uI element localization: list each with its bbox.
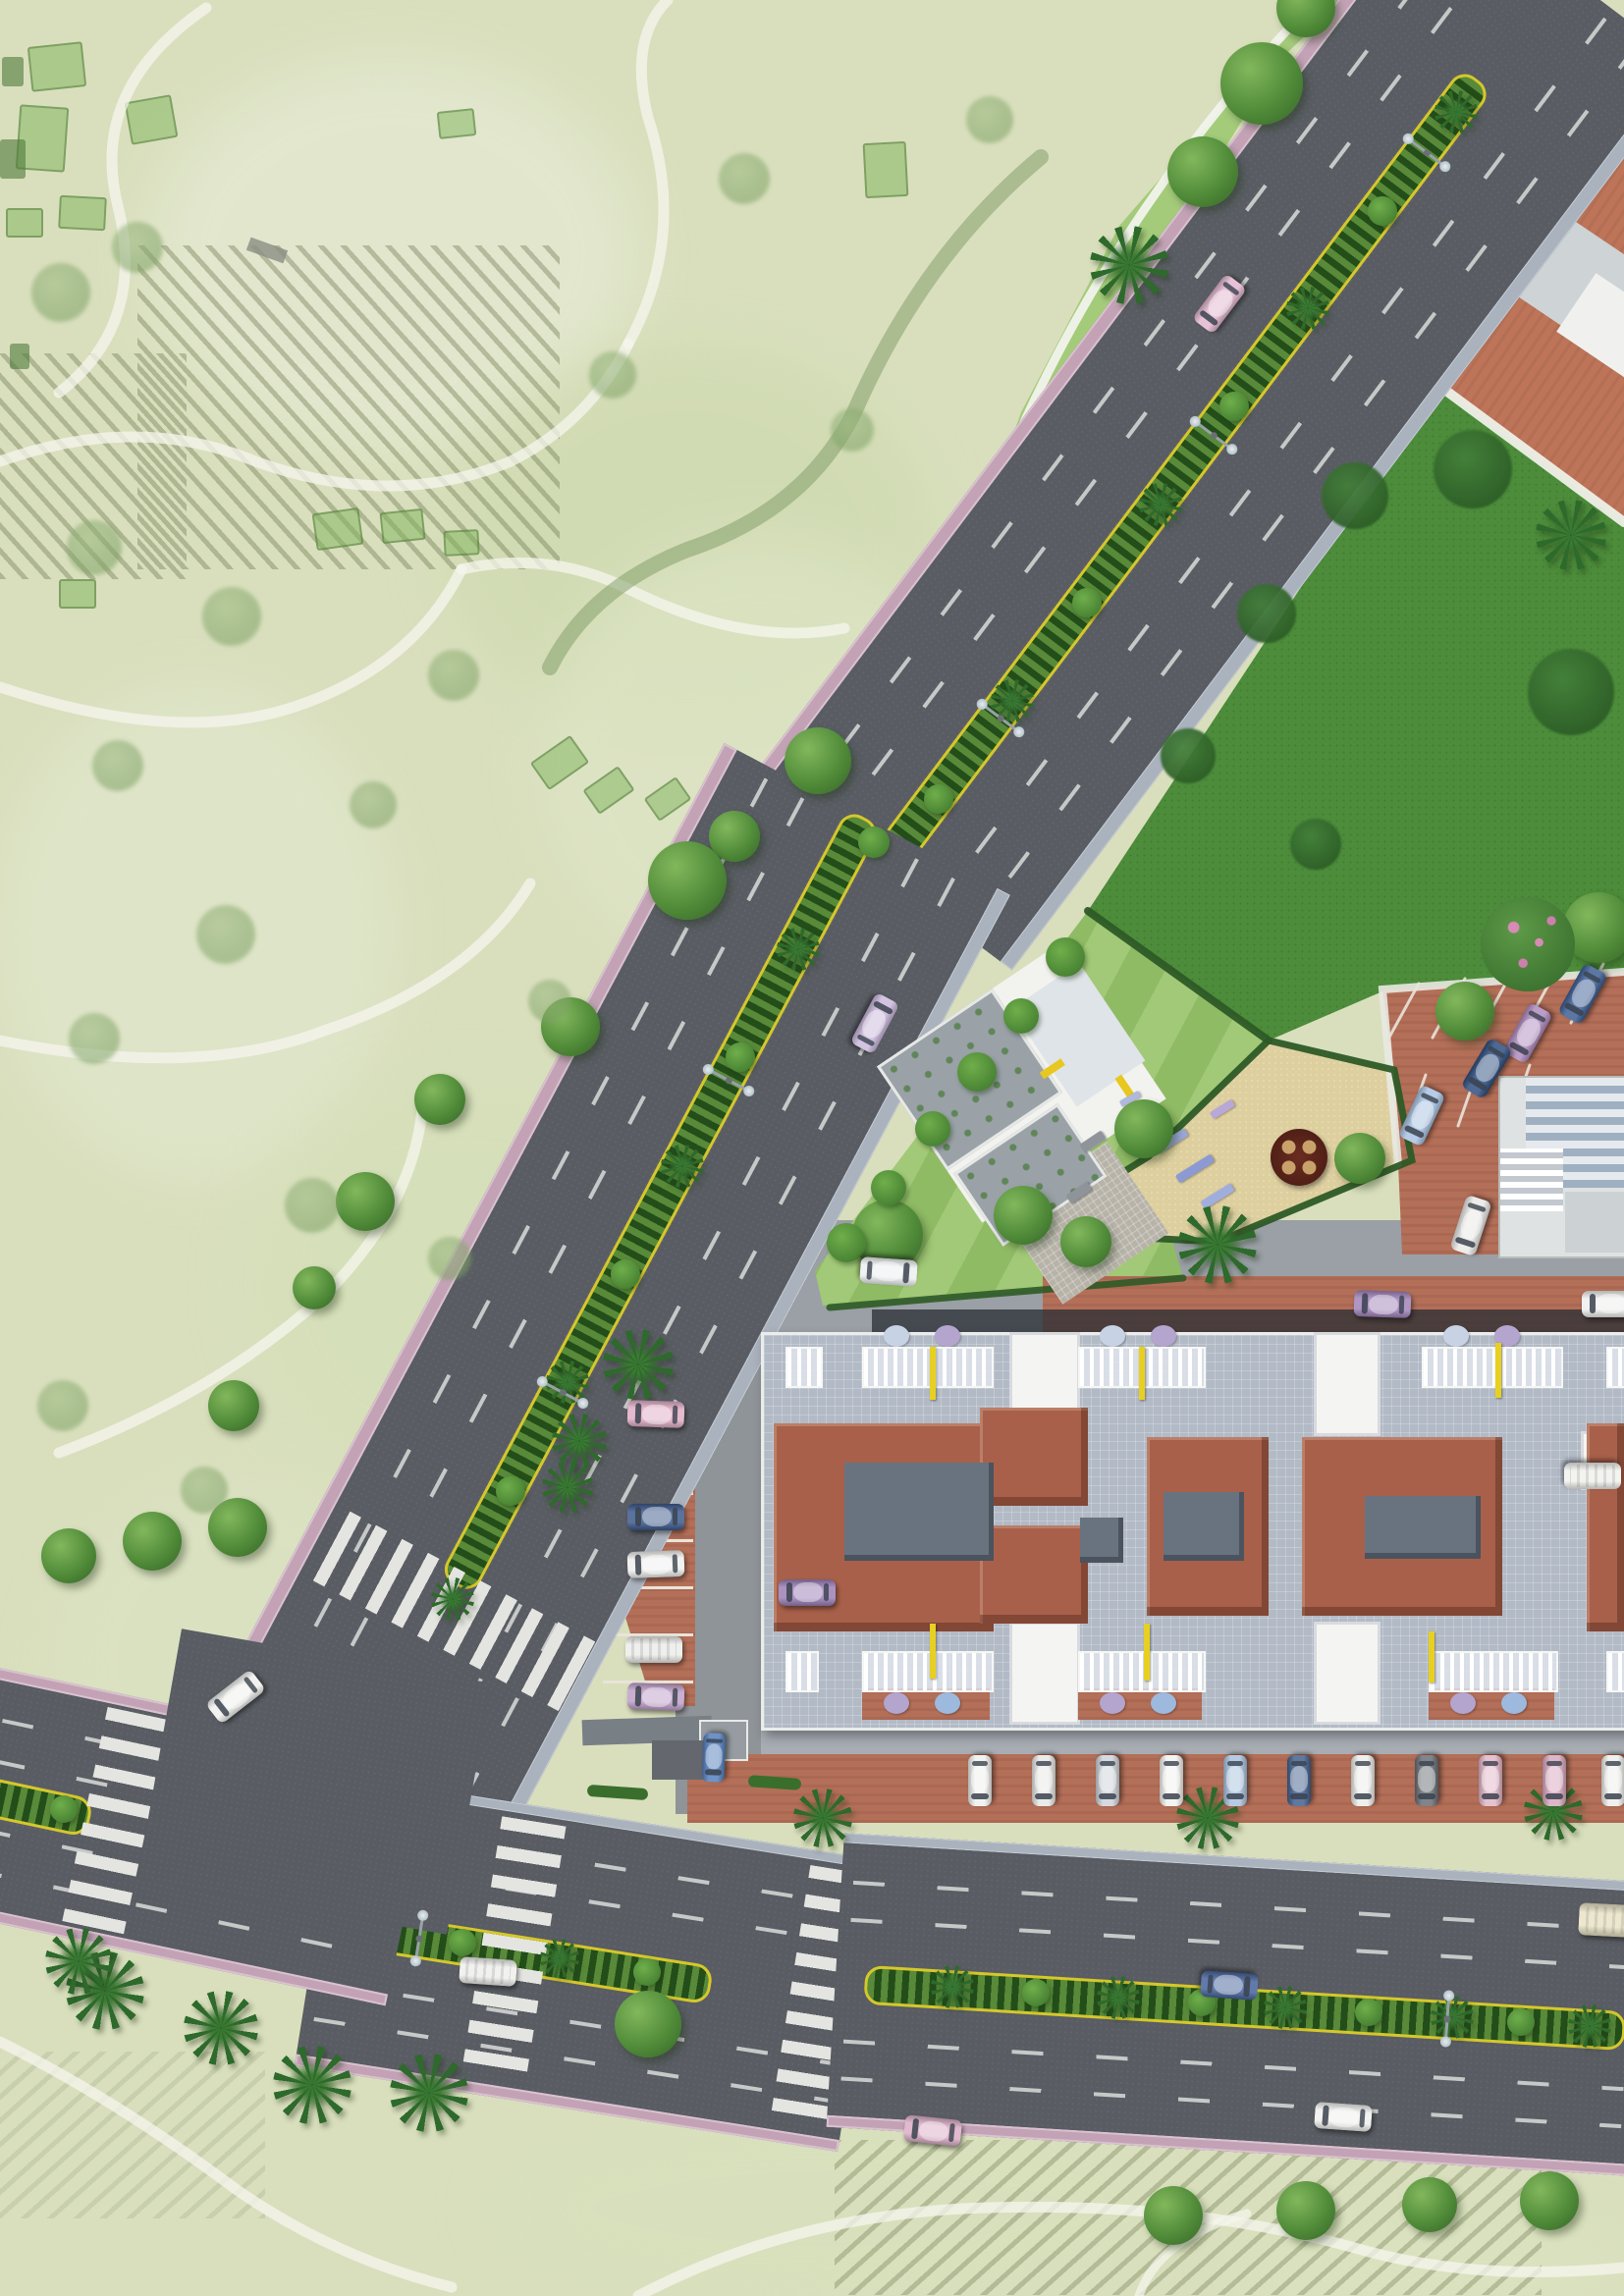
car-roof [1597,1294,1624,1313]
car-windshield [635,1554,642,1575]
tree-round [414,1074,465,1125]
car-roof [642,1404,673,1424]
car-windshield [1590,1294,1596,1314]
car-windshield [971,1793,989,1799]
roof-terracotta [980,1408,1088,1506]
car-roof [872,1260,902,1282]
tree-faded [966,96,1013,143]
balcony-railing [1606,1651,1624,1692]
palm-tree [390,2054,468,2132]
court-wall [1314,1332,1380,1436]
van-roof-ribs [631,1638,677,1661]
car-rear-window [824,1583,829,1602]
tree-round [1220,42,1303,125]
car-rear-window [1546,1761,1563,1766]
tree-round [208,1380,259,1431]
van [625,1636,682,1663]
palm-tree [931,1965,974,2008]
van-roof-ribs [1586,1905,1624,1936]
shrub [1219,392,1249,421]
shrub [858,827,890,858]
tree-round [1060,1216,1111,1267]
tree-faded [196,905,255,964]
stair-core-roof [1365,1496,1481,1559]
tree-round [1167,136,1238,207]
car [627,1504,684,1530]
tree-faded [285,1178,340,1233]
car-rear-window [1359,2109,1366,2127]
balcony-railing [785,1347,823,1388]
tree-round [994,1186,1053,1245]
car-windshield [786,1582,792,1603]
tree-round [1520,2171,1579,2230]
shrub [1368,196,1397,226]
palm-tree [1097,1976,1140,2019]
path-line [59,8,206,393]
tree-dark-clump [1237,584,1296,643]
site-plan-canvas [0,0,1624,2296]
shrub [1046,937,1085,977]
car [1096,1755,1119,1806]
patio-umbrella [884,1692,909,1714]
car-roof [705,1743,723,1770]
tree-dark-clump [1161,728,1216,783]
shrub [1022,1979,1050,2006]
palm-tree [273,2046,352,2124]
shrub [1003,998,1039,1034]
tree-faded [202,587,261,646]
tree-faded [181,1467,228,1514]
car [1354,1289,1412,1317]
car [1601,1755,1624,1806]
car-roof [1226,1766,1244,1792]
car-windshield [1243,1976,1251,1997]
tree-round [615,1991,681,2057]
car [1351,1755,1375,1806]
palm-tree [661,1145,704,1188]
court-wall [1009,1622,1080,1725]
car-roof [1457,1206,1485,1241]
car [1032,1755,1056,1806]
car-rear-window [1100,1761,1116,1766]
patio-umbrella [1450,1692,1476,1714]
car-windshield [902,1262,910,1283]
car-rear-window [1355,1761,1372,1766]
car [779,1579,836,1606]
car [1200,1970,1259,2001]
shrub [1507,2008,1535,2036]
patio-umbrella [1100,1692,1125,1714]
van [1564,1463,1621,1489]
car-windshield [1035,1793,1053,1799]
shrub [915,1111,950,1147]
car-rear-window [1398,1295,1404,1313]
car [1543,1755,1566,1806]
car-windshield [635,1507,641,1527]
path-line [628,0,668,344]
tree-round [1114,1099,1173,1158]
car-roof [1604,1766,1622,1792]
palm-tree [603,1329,674,1400]
car-windshield [1099,1793,1116,1799]
van-roof-ribs [464,1958,512,1984]
tree-faded [589,351,636,399]
tree-round [41,1528,96,1583]
shrub [827,1223,866,1262]
palm-tree [431,1577,474,1621]
tree-dark-clump [1528,649,1614,735]
car-roof [1099,1766,1116,1792]
ne-building-steps [1500,1148,1563,1211]
car-rear-window [673,1508,677,1526]
tree-faded [528,980,571,1023]
shrub [1072,588,1102,617]
balcony-railing [1429,1651,1558,1692]
car-windshield [705,1769,723,1775]
car [1314,2102,1373,2132]
patio-umbrella [935,1692,960,1714]
palm-tree [1139,483,1182,526]
car [1582,1291,1624,1317]
palm-tree [184,1991,258,2065]
vent-pole [1429,1631,1435,1682]
palm-tree [1431,1996,1474,2039]
vent-pole [1495,1343,1501,1398]
palm-tree [552,1414,607,1468]
car [627,1399,685,1427]
merry-go-round [1271,1129,1327,1186]
palm-tree [793,1789,852,1847]
car [1287,1755,1311,1806]
tree-round [1144,2186,1203,2245]
car-roof [793,1582,823,1602]
car-roof [1354,1766,1372,1792]
shrub [1355,1999,1382,2026]
car-windshield [1322,2105,1329,2125]
tree-faded [350,781,397,828]
car [1479,1755,1502,1806]
car [627,1682,685,1710]
shrub [726,1042,755,1072]
tree-faded [428,650,479,701]
balcony-floor [1429,1688,1554,1720]
vent-pole [1144,1624,1150,1681]
car-roof [1545,1766,1563,1792]
patio-umbrella [1151,1692,1176,1714]
car-rear-window [1036,1761,1053,1766]
car-rear-window [1227,1761,1244,1766]
balcony-railing [862,1347,994,1388]
tree-faded [69,1013,120,1064]
balcony-railing [1422,1347,1563,1388]
tree-dark-clump [1434,430,1512,508]
tree-round [1402,2177,1457,2232]
shrub [871,1170,906,1205]
car-windshield [1418,1793,1435,1799]
shrub [611,1259,640,1289]
shrub [449,1929,476,1956]
palm-tree [45,1928,112,1995]
vent-pole [930,1624,936,1679]
car-rear-window [1164,1761,1180,1766]
vent-pole [930,1347,936,1400]
car-rear-window [672,1687,677,1706]
car-windshield [1290,1793,1308,1799]
car-rear-window [948,2122,955,2141]
car-windshield [1482,1793,1499,1799]
van-roof-ribs [1570,1465,1615,1487]
stair-core-roof [1080,1518,1123,1563]
balcony-railing [1606,1347,1624,1388]
car-windshield [635,1403,642,1423]
tree-faded [428,1237,471,1280]
tree-round [785,727,851,794]
car [702,1733,727,1783]
car-roof [1482,1766,1499,1792]
patio-umbrella [935,1325,960,1347]
palm-tree [1286,287,1329,330]
car [903,2114,963,2147]
tree-round [1334,1133,1385,1184]
car-rear-window [706,1738,722,1743]
tree-round [1276,2181,1335,2240]
palm-tree [1568,2004,1611,2048]
car-roof [1035,1766,1053,1792]
van [1578,1902,1624,1939]
junction-patch [137,1629,491,1935]
tree-dark-clump [1290,819,1341,870]
car-roof [1369,1294,1399,1314]
car-roof [971,1766,989,1792]
car-rear-window [866,1260,873,1279]
car-roof [642,1553,673,1574]
patio-umbrella [1443,1325,1469,1347]
shrub [633,1958,661,1986]
patio-umbrella [884,1325,909,1347]
vent-pole [1139,1347,1145,1400]
car-roof [1418,1766,1435,1792]
roof-terracotta [980,1525,1088,1624]
lane-marking [319,1980,839,2066]
lane-marking [850,1918,1624,1970]
palm-tree [540,1939,579,1978]
tree-faded [831,408,874,452]
car-rear-window [672,1405,677,1423]
flowering-shrub [1481,897,1575,991]
tree-faded [37,1380,88,1431]
gate-ramp-zebra [652,1740,709,1780]
car-rear-window [1483,1761,1499,1766]
car-roof [1328,2106,1359,2127]
car-rear-window [1419,1761,1435,1766]
tree-round [648,841,727,920]
car-rear-window [672,1554,677,1573]
palm-tree [1264,1986,1307,2029]
tree-faded [92,740,143,791]
balcony-railing [1078,1651,1206,1692]
car-windshield [1604,1793,1622,1799]
palm-tree [542,1462,593,1513]
path-line [638,2207,1624,2296]
court-wall [1314,1622,1380,1725]
balcony-floor [1078,1688,1202,1720]
car-rear-window [972,1761,989,1766]
car [1223,1755,1247,1806]
patio-umbrella [1100,1325,1125,1347]
shrub [957,1052,997,1092]
palm-tree [1178,1205,1257,1284]
car [859,1256,918,1287]
car-roof [642,1507,672,1526]
balcony-railing [862,1651,994,1692]
patio-umbrella [1501,1692,1527,1714]
tree-faded [719,153,770,204]
car-roof [1290,1766,1308,1792]
tree-dark-clump [1322,462,1388,529]
car-rear-window [1291,1761,1308,1766]
tree-round [336,1172,395,1231]
car-windshield [1545,1793,1563,1799]
car [1160,1755,1183,1806]
van [459,1956,517,1987]
car-roof [1213,1974,1243,1996]
car-rear-window [1605,1761,1622,1766]
car-roof [918,2119,949,2142]
shrub [496,1476,525,1506]
roof-terracotta [1587,1423,1624,1631]
ne-building-wing [1565,1192,1624,1253]
tree-faded [31,263,90,322]
balcony-floor [862,1688,990,1720]
palm-tree [1536,500,1606,570]
tree-round [123,1512,182,1571]
shrub [50,1795,78,1823]
balcony-railing [785,1651,819,1692]
palm-tree [1435,90,1478,133]
tree-round [1435,982,1494,1041]
tree-round [293,1266,336,1309]
car-roof [642,1686,673,1707]
car-windshield [635,1685,642,1706]
car-windshield [1163,1793,1180,1799]
car-windshield [1362,1293,1369,1313]
car [1415,1755,1438,1806]
car-windshield [1226,1793,1244,1799]
shrub [924,784,953,814]
tree-faded [67,520,122,575]
car-windshield [1354,1793,1372,1799]
stair-core-roof [844,1463,994,1561]
car-rear-window [1207,1974,1214,1993]
patio-umbrella [1151,1325,1176,1347]
tree-faded [112,222,163,273]
car-roof [1163,1766,1180,1792]
car [627,1549,685,1577]
car [968,1755,992,1806]
stair-core-roof [1164,1492,1244,1561]
palm-tree [1090,226,1168,304]
palm-tree [777,928,820,971]
